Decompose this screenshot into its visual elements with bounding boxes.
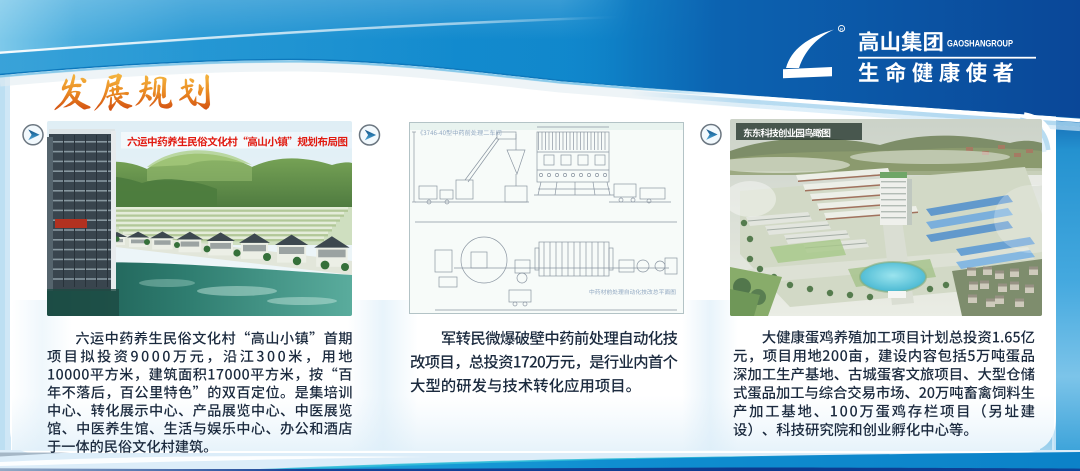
svg-text:GAOSHANGROUP: GAOSHANGROUP (947, 39, 1013, 49)
